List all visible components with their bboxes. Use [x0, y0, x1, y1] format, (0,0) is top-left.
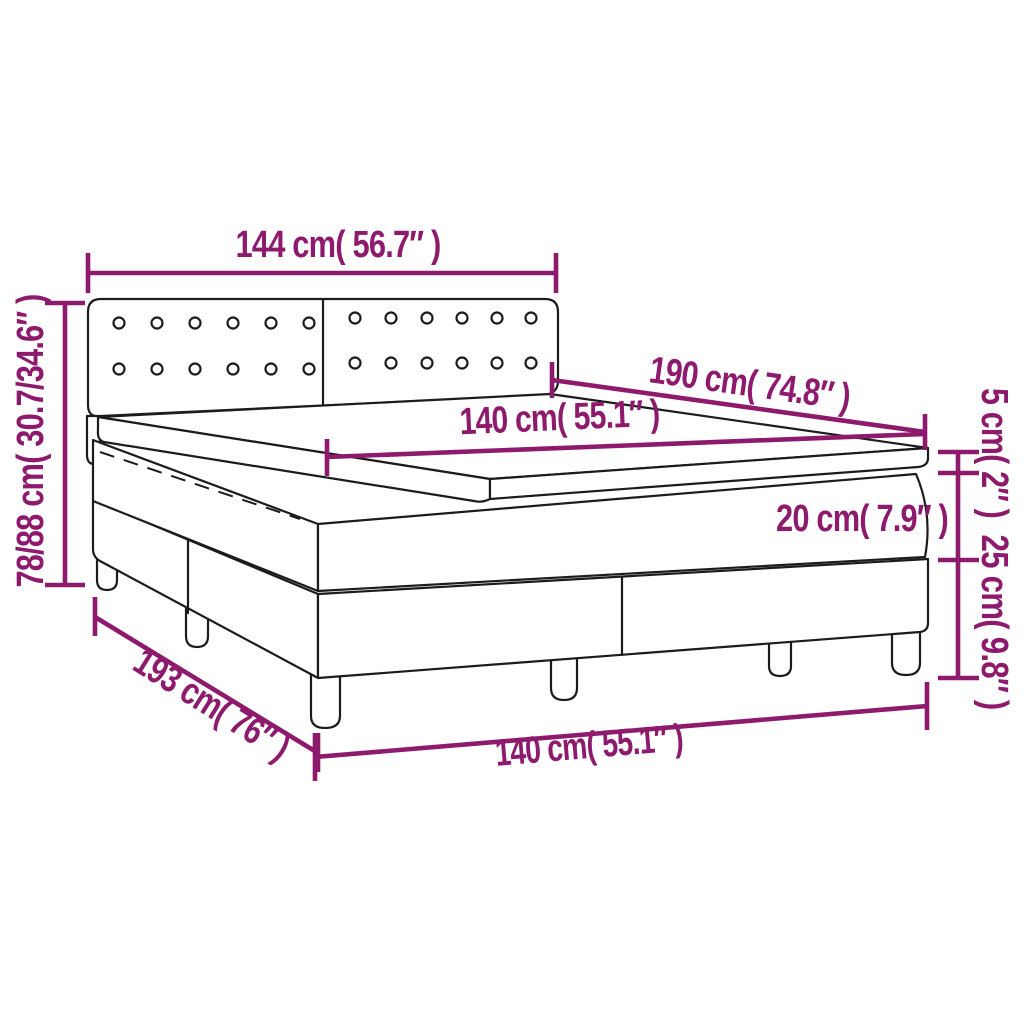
dim-base-width-bottom: 140 cm( 55.1″ ) — [315, 682, 927, 781]
bed-diagram-svg: 144 cm( 56.7″ ) 78/88 cm( 30.7/34.6″ ) 1… — [0, 0, 1024, 1024]
dim-label-mattress-width-top: 140 cm( 55.1″ ) — [459, 393, 661, 444]
headboard-button — [492, 313, 503, 324]
dim-label-base-length: 193 cm( 76″ ) — [126, 641, 297, 769]
headboard-button — [526, 313, 537, 324]
headboard-button — [228, 364, 239, 375]
headboard-button — [386, 313, 397, 324]
dim-label-mattress-height: 20 cm( 7.9″ ) — [776, 498, 948, 540]
dim-headboard-width: 144 cm( 56.7″ ) — [88, 224, 556, 293]
headboard-button — [526, 358, 537, 369]
headboard-button — [386, 358, 397, 369]
headboard-button — [190, 318, 201, 329]
dim-bed-height: 78/88 cm( 30.7/34.6″ ) — [10, 295, 85, 588]
dim-label-headboard-width: 144 cm( 56.7″ ) — [236, 224, 441, 266]
dim-label-base-height: 25 cm( 9.8″ ) — [973, 535, 1015, 710]
dim-label-bed-height: 78/88 cm( 30.7/34.6″ ) — [10, 295, 52, 588]
headboard-button — [457, 358, 468, 369]
headboard-button — [266, 364, 277, 375]
headboard-button — [228, 318, 239, 329]
headboard-button — [350, 358, 361, 369]
dim-label-base-width-bottom: 140 cm( 55.1″ ) — [494, 717, 685, 775]
headboard-button — [114, 364, 125, 375]
headboard-button — [152, 364, 163, 375]
headboard-button — [266, 318, 277, 329]
dim-label-topper-height: 5 cm( 2″ ) — [973, 388, 1015, 518]
headboard-button — [457, 313, 468, 324]
headboard-button — [422, 358, 433, 369]
headboard-button — [152, 318, 163, 329]
headboard-button — [422, 313, 433, 324]
headboard-button — [114, 318, 125, 329]
headboard-button — [492, 358, 503, 369]
headboard-button — [304, 364, 315, 375]
headboard-button — [350, 313, 361, 324]
bed-dimension-diagram: 144 cm( 56.7″ ) 78/88 cm( 30.7/34.6″ ) 1… — [0, 0, 1024, 1024]
headboard-button — [304, 318, 315, 329]
headboard-button — [190, 364, 201, 375]
